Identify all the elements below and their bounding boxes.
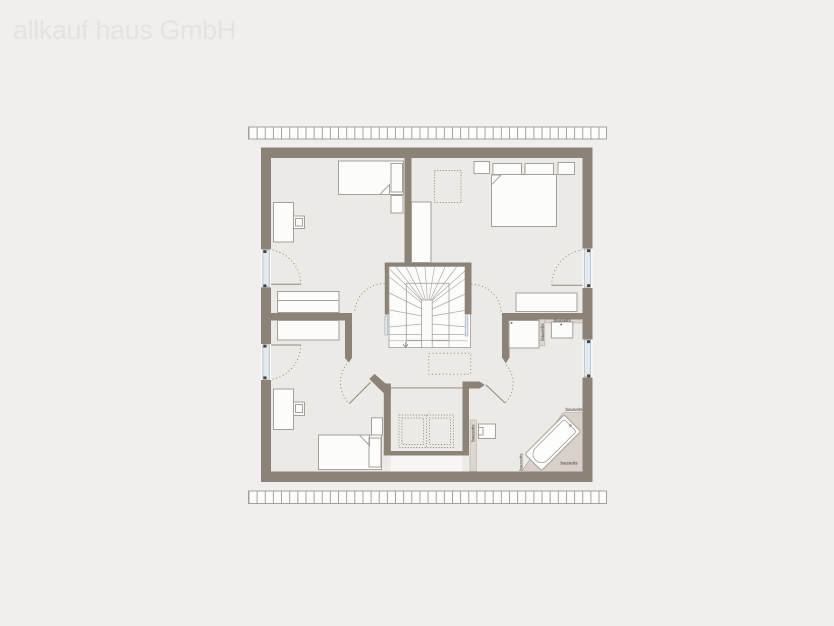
- svg-text:bauseits: bauseits: [560, 461, 578, 466]
- svg-text:bauseits: bauseits: [518, 453, 523, 471]
- svg-text:bauseits: bauseits: [554, 318, 572, 323]
- svg-text:bauseits: bauseits: [471, 424, 476, 442]
- svg-text:bauseits: bauseits: [565, 407, 583, 412]
- svg-text:bauseits: bauseits: [540, 323, 545, 341]
